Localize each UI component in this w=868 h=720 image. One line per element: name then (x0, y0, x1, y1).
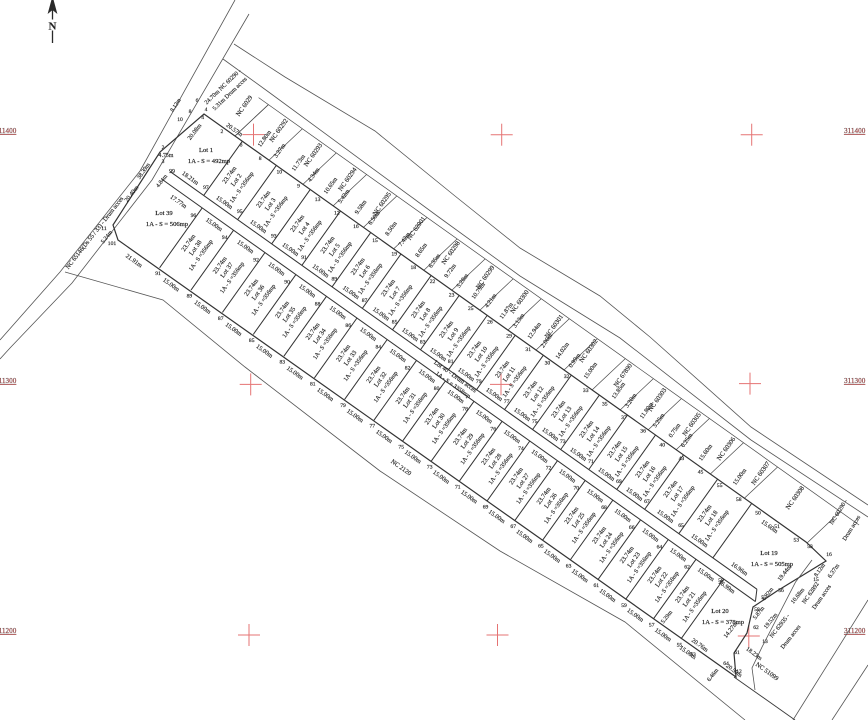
svg-text:Lot 19: Lot 19 (760, 550, 778, 557)
svg-text:1A - S = 506mp: 1A - S = 506mp (146, 221, 189, 228)
svg-text:67: 67 (644, 499, 650, 505)
svg-text:29: 29 (506, 333, 512, 339)
svg-text:81: 81 (310, 381, 316, 387)
svg-text:65: 65 (538, 544, 544, 550)
svg-text:N: N (49, 21, 57, 33)
svg-text:Lot 39: Lot 39 (155, 210, 173, 217)
svg-text:87: 87 (218, 316, 224, 322)
svg-text:311300: 311300 (844, 377, 866, 385)
svg-text:4.75m: 4.75m (159, 153, 174, 159)
svg-text:9: 9 (297, 183, 300, 189)
svg-text:86: 86 (345, 323, 351, 329)
svg-text:2: 2 (221, 129, 224, 135)
svg-text:91: 91 (301, 255, 307, 261)
svg-text:3: 3 (162, 159, 165, 165)
svg-text:85: 85 (392, 319, 398, 325)
svg-text:90: 90 (284, 280, 290, 286)
svg-text:75: 75 (532, 419, 538, 425)
svg-text:72: 72 (546, 466, 552, 472)
svg-text:89: 89 (187, 294, 193, 300)
svg-text:70: 70 (574, 485, 580, 491)
svg-text:55: 55 (717, 483, 723, 489)
svg-text:88: 88 (315, 301, 321, 307)
svg-text:65: 65 (678, 523, 684, 529)
svg-text:83: 83 (280, 360, 286, 366)
svg-text:8: 8 (259, 156, 262, 162)
svg-text:57: 57 (649, 623, 655, 629)
svg-text:99: 99 (169, 169, 175, 175)
svg-text:10: 10 (177, 117, 183, 123)
svg-text:79: 79 (340, 403, 346, 409)
svg-text:57: 57 (761, 595, 767, 601)
svg-text:63: 63 (690, 652, 696, 658)
svg-text:101: 101 (108, 241, 117, 247)
svg-text:45: 45 (698, 470, 704, 476)
svg-text:64: 64 (657, 545, 663, 551)
svg-text:23: 23 (449, 292, 455, 298)
svg-text:68: 68 (601, 505, 607, 511)
svg-text:1A - S = 492mp: 1A - S = 492mp (188, 158, 231, 165)
svg-text:81: 81 (448, 359, 454, 365)
svg-text:77: 77 (370, 424, 376, 430)
svg-text:55: 55 (677, 642, 683, 648)
svg-text:94: 94 (222, 235, 228, 241)
svg-text:31: 31 (525, 347, 531, 353)
svg-text:91: 91 (155, 271, 161, 277)
svg-text:95: 95 (237, 209, 243, 215)
svg-text:84: 84 (376, 345, 382, 351)
svg-text:33: 33 (583, 388, 589, 394)
svg-text:89: 89 (332, 276, 338, 282)
svg-text:4: 4 (205, 107, 208, 113)
svg-text:87: 87 (362, 298, 368, 304)
svg-text:40: 40 (659, 442, 665, 448)
svg-text:80: 80 (434, 386, 440, 392)
svg-text:Lot 1: Lot 1 (199, 147, 213, 154)
svg-text:15: 15 (372, 238, 378, 244)
svg-text:77: 77 (504, 399, 510, 405)
svg-text:76: 76 (490, 426, 496, 432)
svg-text:53: 53 (807, 544, 813, 550)
svg-text:61: 61 (594, 583, 600, 589)
svg-text:69: 69 (616, 479, 622, 485)
svg-text:79: 79 (476, 379, 482, 385)
svg-text:Lot 20: Lot 20 (711, 608, 729, 615)
svg-text:50: 50 (755, 510, 761, 516)
svg-text:74: 74 (518, 446, 524, 452)
svg-text:63: 63 (566, 563, 572, 569)
svg-text:53: 53 (794, 538, 800, 544)
svg-text:311400: 311400 (844, 127, 866, 135)
svg-text:18: 18 (411, 265, 417, 271)
svg-text:83: 83 (420, 339, 426, 345)
svg-text:69: 69 (483, 504, 489, 510)
svg-text:30: 30 (545, 361, 551, 367)
svg-text:25: 25 (468, 306, 474, 312)
svg-text:66: 66 (629, 525, 635, 531)
svg-text:35: 35 (602, 401, 608, 407)
svg-text:16: 16 (826, 552, 832, 558)
svg-text:73: 73 (560, 439, 566, 445)
svg-text:311400: 311400 (0, 127, 17, 135)
svg-text:6: 6 (196, 98, 199, 104)
svg-text:11: 11 (101, 226, 107, 232)
svg-text:78: 78 (462, 406, 468, 412)
svg-text:73: 73 (427, 465, 433, 471)
svg-text:311300: 311300 (0, 377, 17, 385)
svg-text:71: 71 (455, 485, 461, 491)
svg-text:26: 26 (487, 320, 493, 326)
svg-text:13: 13 (762, 639, 768, 645)
svg-text:13: 13 (315, 197, 321, 203)
svg-text:58: 58 (754, 607, 760, 613)
svg-text:59: 59 (718, 578, 724, 584)
svg-text:82: 82 (405, 365, 411, 371)
svg-text:311200: 311200 (0, 627, 17, 635)
svg-text:62: 62 (753, 625, 759, 631)
svg-text:16: 16 (353, 224, 359, 230)
svg-text:67: 67 (510, 524, 516, 530)
svg-text:62: 62 (684, 564, 690, 570)
svg-text:97: 97 (203, 185, 209, 191)
svg-text:59: 59 (621, 603, 627, 609)
svg-text:92: 92 (253, 258, 259, 264)
svg-text:8: 8 (189, 109, 192, 115)
svg-text:71: 71 (588, 459, 594, 465)
svg-text:93: 93 (271, 233, 277, 239)
svg-text:96: 96 (191, 213, 197, 219)
svg-text:19: 19 (391, 252, 397, 258)
svg-text:75: 75 (398, 444, 404, 450)
svg-text:22: 22 (430, 279, 436, 285)
svg-text:10: 10 (277, 170, 283, 176)
svg-text:56: 56 (778, 588, 784, 594)
svg-text:85: 85 (249, 338, 255, 344)
svg-text:61: 61 (734, 650, 740, 656)
svg-text:36: 36 (640, 429, 646, 435)
svg-text:58: 58 (736, 497, 742, 503)
